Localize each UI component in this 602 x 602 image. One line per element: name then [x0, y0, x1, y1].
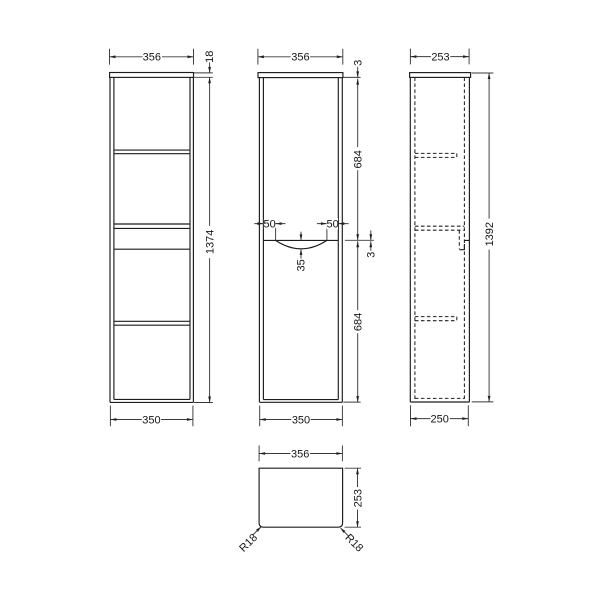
svg-text:356: 356	[291, 52, 309, 64]
svg-text:253: 253	[431, 52, 449, 64]
svg-text:684: 684	[352, 150, 364, 168]
svg-text:356: 356	[143, 52, 161, 64]
svg-text:253: 253	[353, 489, 365, 507]
svg-text:350: 350	[292, 414, 310, 426]
svg-text:250: 250	[431, 413, 449, 425]
svg-text:356: 356	[291, 448, 309, 460]
svg-text:350: 350	[142, 414, 160, 426]
svg-text:1392: 1392	[484, 222, 496, 246]
svg-text:3: 3	[365, 252, 377, 258]
svg-text:50: 50	[326, 218, 338, 230]
svg-text:50: 50	[263, 218, 275, 230]
svg-text:1374: 1374	[205, 230, 217, 254]
svg-text:18: 18	[204, 51, 216, 63]
svg-text:684: 684	[352, 313, 364, 331]
svg-text:35: 35	[296, 259, 308, 271]
svg-text:3: 3	[353, 60, 365, 66]
